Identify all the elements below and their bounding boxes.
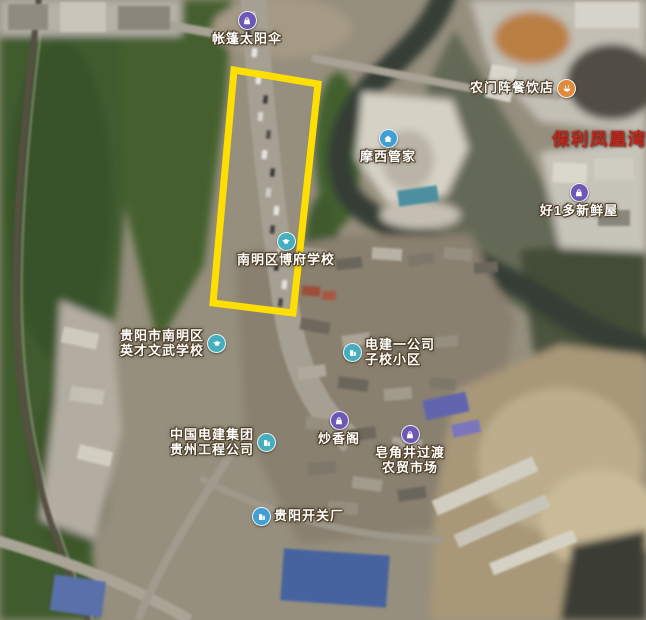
satellite-map[interactable]: 帐篷太阳伞 农门阵餐饮店 保利凤凰湾 摩西管家 好1多新鲜屋 南明区博府学校 贵… xyxy=(0,0,646,620)
school-icon xyxy=(276,232,295,251)
poi-label-line2: 农贸市场 xyxy=(382,461,438,476)
poi-label-line1: 皂角井过渡 xyxy=(375,446,445,461)
poi-label-line1: 贵阳市南明区 xyxy=(120,329,204,344)
building-icon xyxy=(257,433,276,452)
restaurant-icon xyxy=(557,79,576,98)
poi-tent-shop[interactable]: 帐篷太阳伞 xyxy=(212,11,282,47)
poi-label: 南明区博府学校 xyxy=(237,253,335,268)
poi-chaoxiangge[interactable]: 炒香阁 xyxy=(318,411,360,447)
shopping-bag-icon xyxy=(569,183,588,202)
poi-label: 帐篷太阳伞 xyxy=(212,32,282,47)
poi-restaurant-nongmenzhen[interactable]: 农门阵餐饮店 xyxy=(470,79,576,98)
shopping-bag-icon xyxy=(400,425,419,444)
shopping-bag-icon xyxy=(329,411,348,430)
poi-label: 好1多新鲜屋 xyxy=(540,204,618,219)
poi-moxi-housekeeper[interactable]: 摩西管家 xyxy=(360,129,416,165)
poi-zaojiaojing-market[interactable]: 皂角井过渡 农贸市场 xyxy=(375,425,445,475)
poi-label: 炒香阁 xyxy=(318,432,360,447)
poi-dianjian-residence[interactable]: 电建一公司 子校小区 xyxy=(343,338,435,367)
poi-label: 农门阵餐饮店 xyxy=(470,81,554,96)
poi-label-line2: 子校小区 xyxy=(365,353,421,368)
building-icon xyxy=(252,507,271,526)
poi-yingcai-school[interactable]: 贵阳市南明区 英才文武学校 xyxy=(120,329,226,358)
poi-label-line1: 电建一公司 xyxy=(365,338,435,353)
home-service-icon xyxy=(378,129,397,148)
poi-hao1duo-fresh[interactable]: 好1多新鲜屋 xyxy=(540,183,618,219)
poi-label: 贵阳开关厂 xyxy=(274,509,344,524)
poi-bofu-school[interactable]: 南明区博府学校 xyxy=(237,232,335,268)
poi-label-line2: 英才文武学校 xyxy=(120,344,204,359)
poi-label-line1: 中国电建集团 xyxy=(170,428,254,443)
poi-label-line2: 贵州工程公司 xyxy=(170,443,254,458)
building-icon xyxy=(343,343,362,362)
poi-guiyang-switch-factory[interactable]: 贵阳开关厂 xyxy=(252,507,344,526)
poi-baoli-phoenix-bay[interactable]: 保利凤凰湾 xyxy=(552,133,646,148)
poi-label-premium: 保利凤凰湾 xyxy=(552,133,646,148)
shopping-bag-icon xyxy=(237,11,256,30)
school-icon xyxy=(207,334,226,353)
poi-powerchina-guizhou[interactable]: 中国电建集团 贵州工程公司 xyxy=(170,428,276,457)
poi-label: 摩西管家 xyxy=(360,150,416,165)
